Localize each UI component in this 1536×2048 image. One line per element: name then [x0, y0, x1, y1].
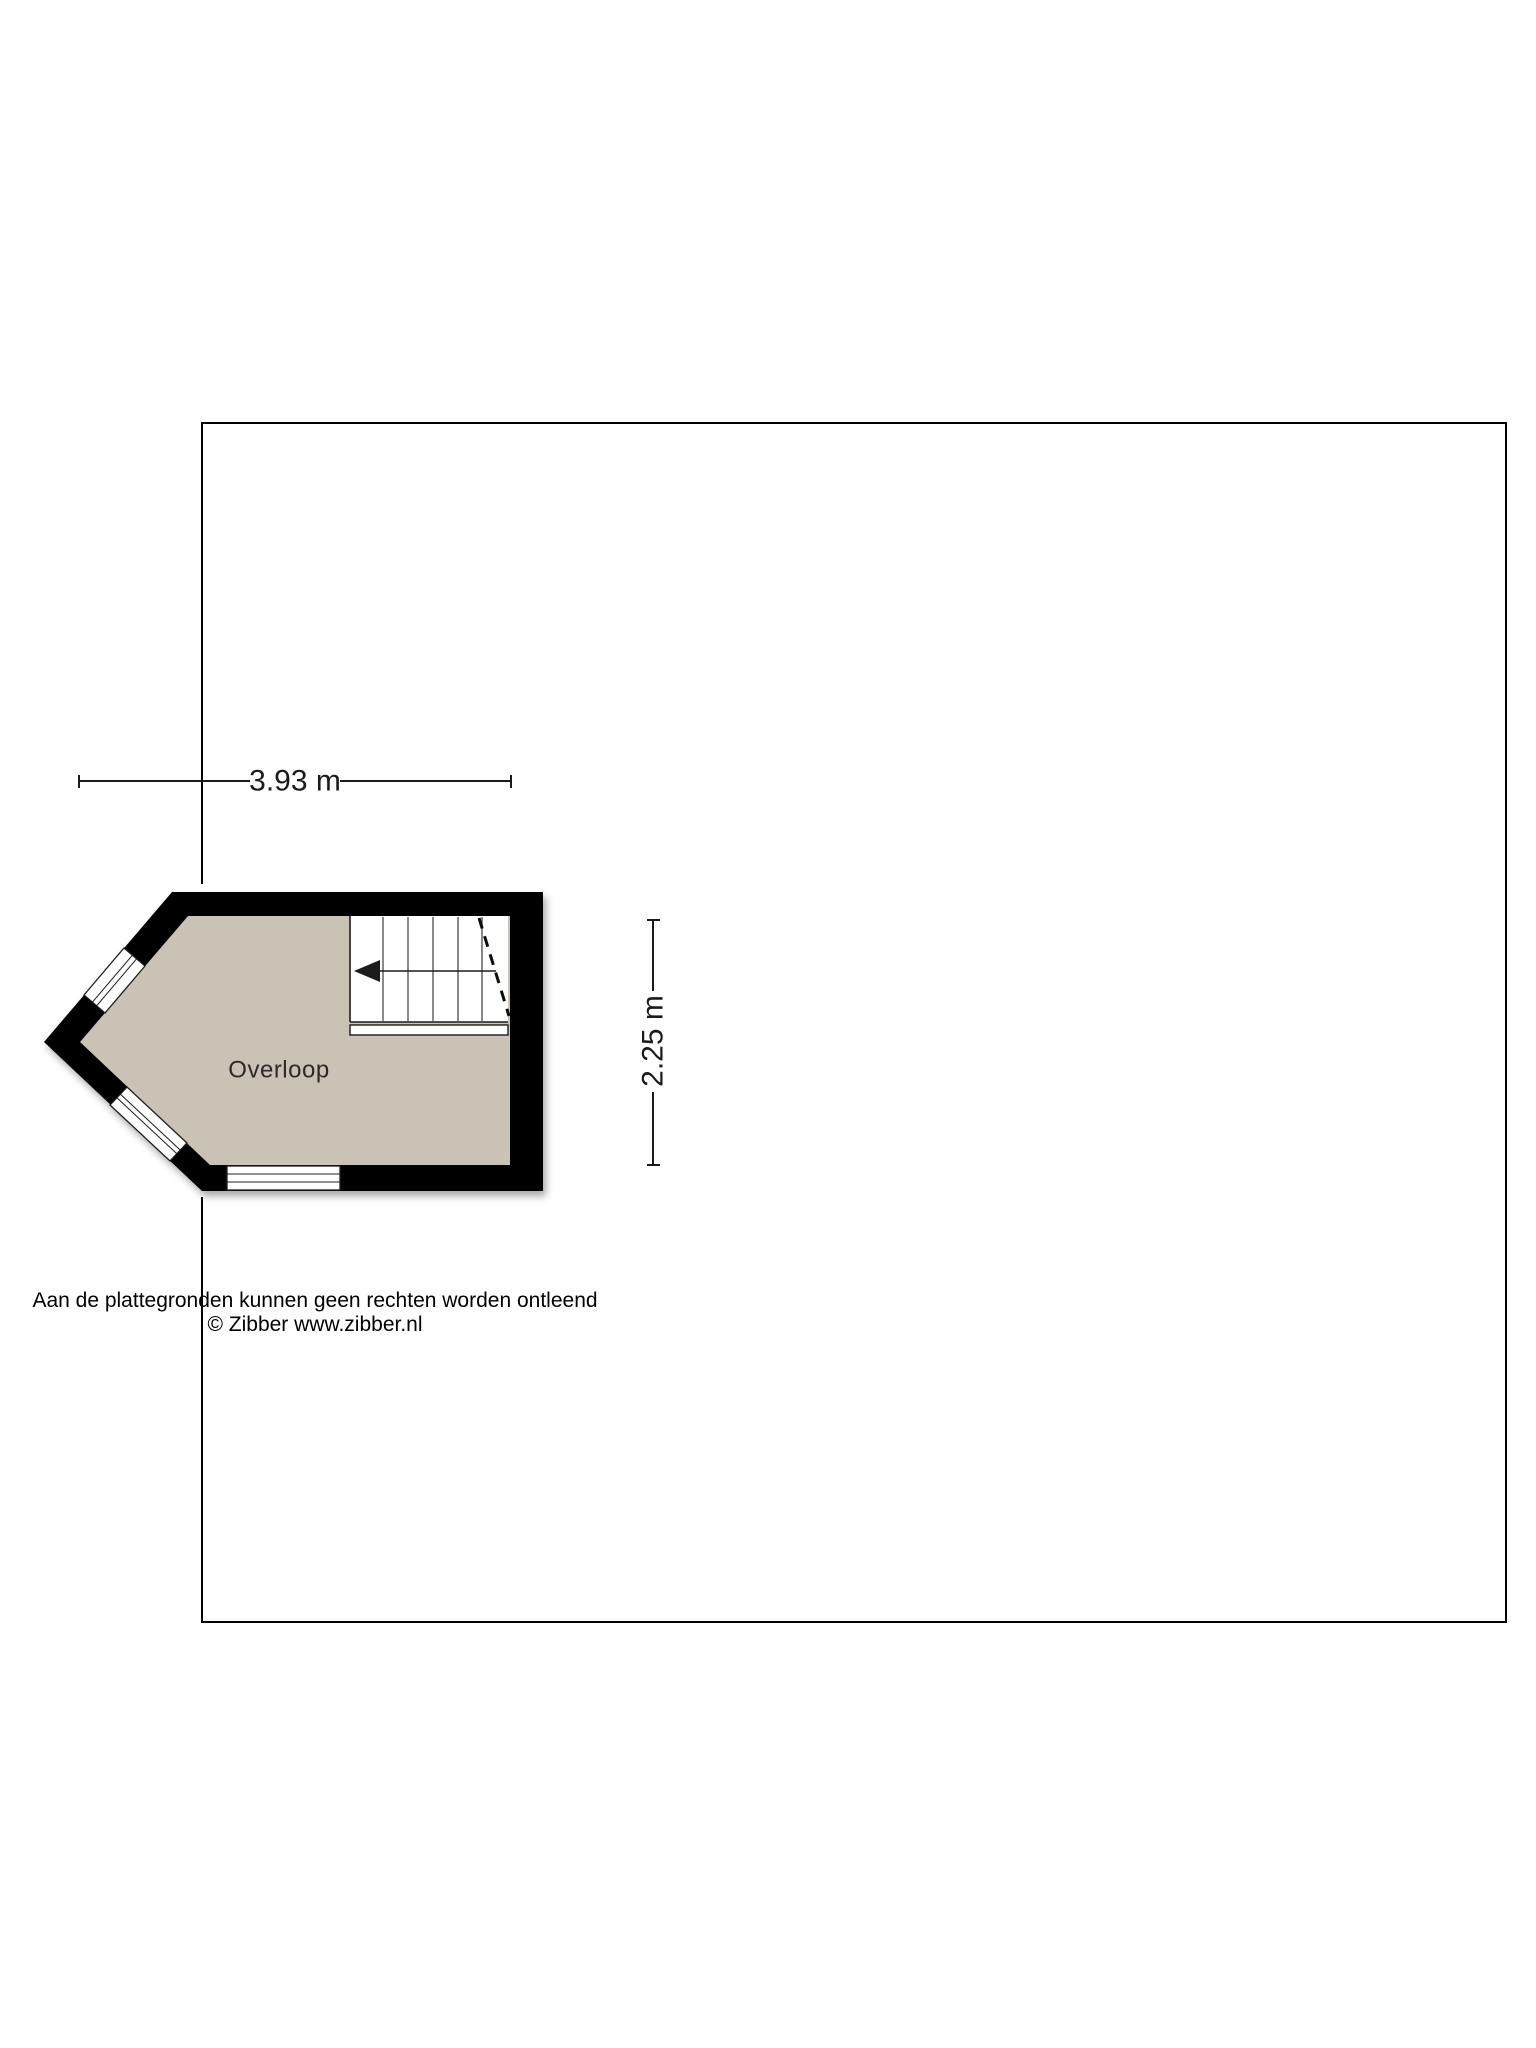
window-bottom	[227, 1166, 340, 1190]
footer-copyright: © Zibber www.zibber.nl	[0, 1313, 630, 1337]
dimension-horizontal: 3.93 m	[79, 765, 511, 798]
dimension-vertical: 2.25 m	[637, 920, 670, 1165]
page: 3.93 m 2.25 m	[0, 0, 1536, 2048]
staircase	[350, 916, 509, 1035]
dimension-width-label: 3.93 m	[249, 765, 341, 798]
floorplan-canvas: 3.93 m 2.25 m	[0, 0, 1536, 2048]
floor-plan: Overloop	[44, 892, 543, 1191]
room-label: Overloop	[228, 1057, 329, 1084]
stair-base-strip	[350, 1025, 508, 1035]
dimension-depth-label: 2.25 m	[637, 995, 670, 1087]
footer: Aan de plattegronden kunnen geen rechten…	[0, 1289, 630, 1337]
footer-disclaimer: Aan de plattegronden kunnen geen rechten…	[0, 1289, 630, 1313]
